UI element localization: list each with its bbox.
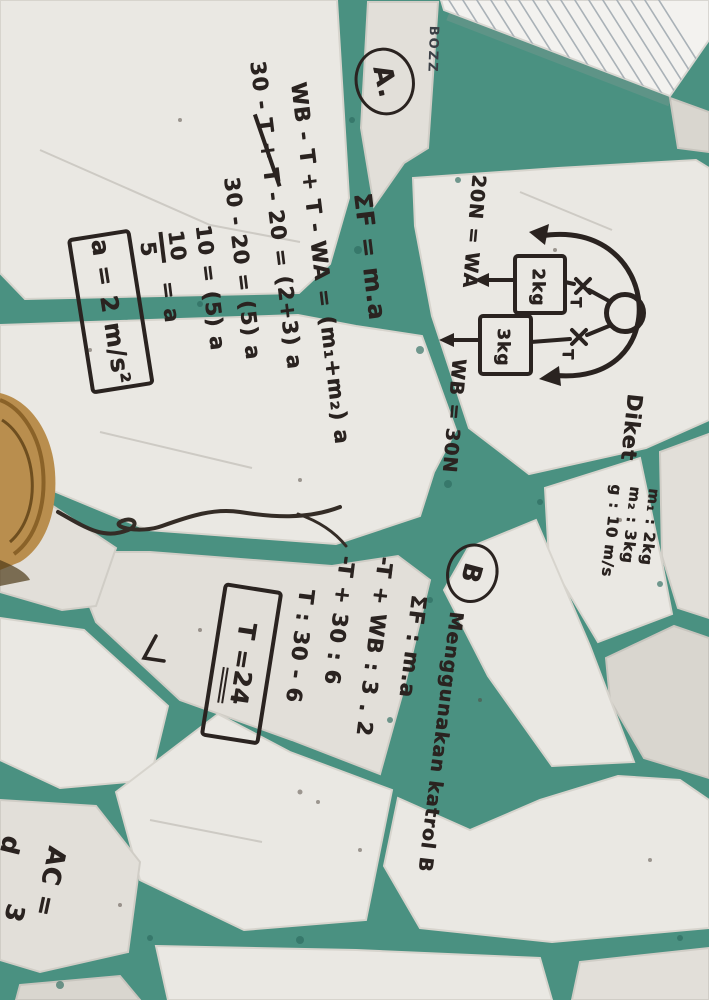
tension-x-right-icon bbox=[572, 330, 586, 344]
handwriting-layer: 2kg T 3kg T 20N = WA WB = 30N Diket m₁ :… bbox=[0, 0, 709, 1000]
floor-photo: BOZZ 2kg T 3kg T 20N = WA WB = 30N bbox=[0, 0, 709, 1000]
corner-note-d: d bbox=[0, 833, 27, 858]
eq-a5: 10 = (5) a bbox=[191, 223, 230, 352]
eq-a2: WB - T + T - WA = (m₁+m₂) a bbox=[286, 81, 354, 446]
eq-b3: -T + 30 : 6 bbox=[320, 554, 360, 686]
eq-b2: -T + WB : 3 . 2 bbox=[352, 555, 398, 738]
tension-right-label: T bbox=[559, 349, 577, 360]
eq-a1: ΣF = m.a bbox=[348, 191, 391, 321]
answer-b-box: T = 24 bbox=[200, 582, 284, 745]
answer-b-value: 24 bbox=[218, 667, 258, 707]
eq-a6: 105 = a bbox=[136, 229, 196, 326]
mass-left-label: 2kg bbox=[528, 268, 548, 306]
fraction: 105 bbox=[136, 229, 189, 266]
section-a: A. ΣF = m.a WB - T + T - WA = (m₁+m₂) a … bbox=[50, 37, 473, 539]
eq-b4: T : 30 - 6 bbox=[281, 588, 319, 705]
corner-note-3: 3 bbox=[0, 901, 31, 926]
corner-note-ac: AC = bbox=[29, 844, 72, 920]
section-b-label: B bbox=[439, 538, 505, 609]
mass-right-label: 3kg bbox=[493, 328, 513, 366]
eq-b1: ΣF : m.a bbox=[395, 593, 431, 699]
tension-left-label: T bbox=[567, 297, 585, 308]
arrow-right-icon bbox=[539, 366, 561, 386]
arrow-left-icon bbox=[529, 224, 549, 245]
weight-left-label: 20N = WA bbox=[458, 174, 490, 290]
struck-terms: T + T bbox=[252, 117, 284, 185]
section-b: B Menggunakan katrol B ΣF : m.a -T + WB … bbox=[182, 511, 502, 804]
section-a-label: A. bbox=[348, 42, 422, 122]
tension-x-left-icon bbox=[576, 279, 590, 293]
pulley-diagram: 2kg T 3kg T 20N = WA WB = 30N bbox=[429, 150, 689, 480]
